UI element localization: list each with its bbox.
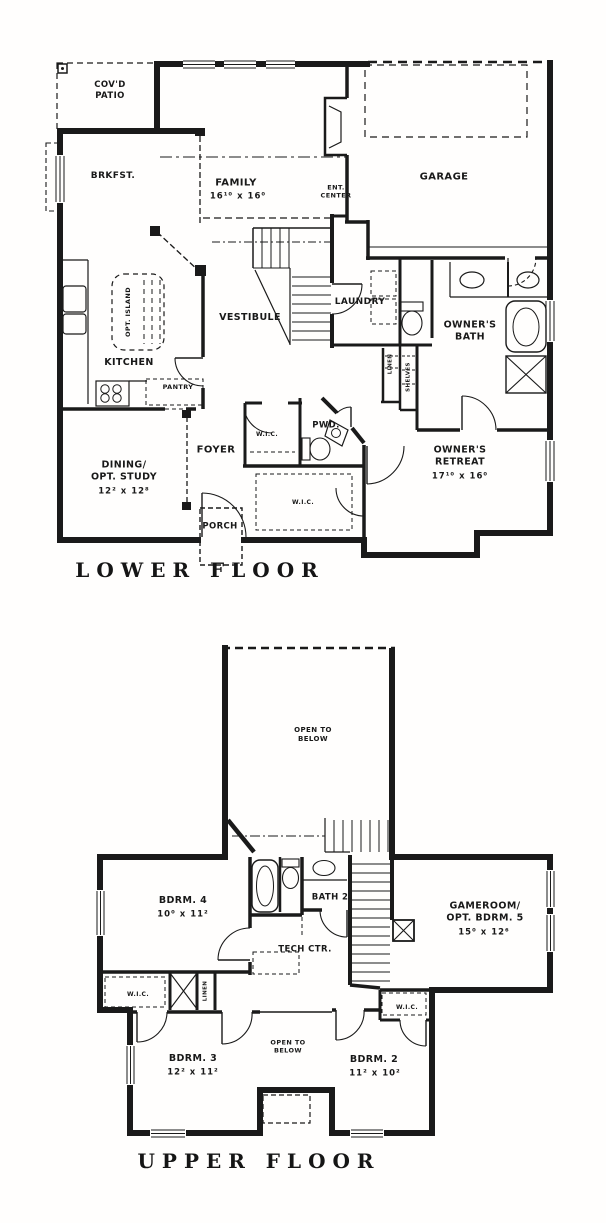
island-dashed xyxy=(112,274,164,350)
door-arc xyxy=(462,396,496,430)
sink-icon xyxy=(313,861,335,876)
room-label-gameroom: GAMEROOM/ OPT. BDRM. 5 xyxy=(446,901,523,926)
upper-exterior-walls xyxy=(97,645,553,1136)
door-arc xyxy=(400,1020,426,1046)
room-label-laundry: LAUNDRY xyxy=(335,297,386,309)
room-label-shelves: SHELVES xyxy=(405,362,412,392)
window xyxy=(183,57,215,71)
window xyxy=(544,870,556,908)
toilet-icon xyxy=(282,859,299,889)
windows-lower xyxy=(53,57,557,482)
room-label-brkfst: BRKFST. xyxy=(91,171,135,183)
window xyxy=(224,57,256,71)
porch-outline xyxy=(200,508,242,565)
room-label-garage: GARAGE xyxy=(420,171,469,184)
window xyxy=(94,890,106,936)
room-label-owners-bath: OWNER'S BATH xyxy=(444,320,497,345)
room-label-pantry: PANTRY xyxy=(163,383,194,391)
room-label-tech-ctr: TECH CTR. xyxy=(278,944,331,955)
room-label-porch: PORCH xyxy=(202,521,237,532)
room-dims-owners-retreat: 17¹⁰ x 16⁰ xyxy=(432,471,488,482)
garage-storage-dashed xyxy=(365,65,527,137)
room-label-owners-retreat: OWNER'S RETREAT xyxy=(434,445,487,470)
bath2-fixtures xyxy=(252,859,347,912)
room-label-opt-island: OPT. ISLAND xyxy=(124,287,132,337)
newel-post xyxy=(393,920,414,941)
window xyxy=(350,1127,384,1139)
stairs-lower xyxy=(253,228,332,345)
room-label-family: FAMILY xyxy=(215,177,257,190)
doors-upper xyxy=(137,910,426,1046)
room-dims-bdrm3: 12² x 11² xyxy=(167,1067,219,1078)
room-label-foyer: FOYER xyxy=(197,444,236,457)
floor-plan-page: COV'D PATIO BRKFST. FAMILY 16¹⁰ x 16⁰ EN… xyxy=(0,0,606,1223)
room-label-bath2: BATH 2 xyxy=(312,892,349,903)
vanity-sink xyxy=(302,861,347,881)
porch-roof-dashed xyxy=(263,1095,310,1123)
sink-icon xyxy=(517,272,539,288)
x-closet xyxy=(170,973,197,1009)
room-dims-bdrm2: 11² x 10² xyxy=(349,1068,401,1079)
room-label-vestibule: VESTIBULE xyxy=(219,312,281,324)
door-arc xyxy=(222,1012,252,1044)
room-label-wic-upper-right: W.I.C. xyxy=(396,1004,418,1012)
room-label-pwd: PWD. xyxy=(312,420,340,431)
room-label-ent-center: ENT. CENTER xyxy=(321,184,352,201)
bathtub-icon xyxy=(506,301,546,352)
door-arc xyxy=(218,928,250,960)
room-dims-bdrm4: 10⁰ x 11² xyxy=(157,909,209,920)
window xyxy=(150,1127,186,1139)
garage-details xyxy=(365,65,547,247)
window xyxy=(266,57,295,71)
sink-icon xyxy=(460,272,484,288)
room-label-dining: DINING/ OPT. STUDY xyxy=(91,460,157,485)
room-label-kitchen: KITCHEN xyxy=(104,357,154,369)
room-dims-gameroom: 15⁰ x 12⁶ xyxy=(458,927,510,938)
room-label-bdrm2: BDRM. 2 xyxy=(350,1054,398,1066)
room-label-wic-hall: W.I.C. xyxy=(256,431,278,439)
window xyxy=(543,440,557,482)
bathtub-icon xyxy=(252,860,278,912)
kitchen-sink-icon xyxy=(63,286,86,334)
range-icon xyxy=(96,381,129,406)
room-label-bdrm4: BDRM. 4 xyxy=(159,895,207,907)
room-dims-family: 16¹⁰ x 16⁰ xyxy=(210,191,266,202)
room-label-linen-lower: LINEN xyxy=(387,354,394,375)
toilet-icon xyxy=(302,438,330,460)
lower-floor-title: LOWER FLOOR xyxy=(75,558,325,582)
door-arc xyxy=(336,1010,364,1040)
door-arc xyxy=(244,405,272,433)
door-arc xyxy=(508,258,536,286)
room-label-open-to-below-small: OPEN TO BELOW xyxy=(270,1039,305,1056)
room-label-bdrm3: BDRM. 3 xyxy=(169,1053,217,1065)
room-label-wic-upper-left: W.I.C. xyxy=(127,991,149,999)
room-label-linen-upper: LINEN xyxy=(202,981,209,1002)
upper-floor-title: UPPER FLOOR xyxy=(137,1149,380,1173)
room-label-covd-patio: COV'D PATIO xyxy=(94,80,125,102)
window xyxy=(124,1045,136,1085)
window xyxy=(544,914,556,952)
door-arc xyxy=(336,488,364,516)
toilet-icon xyxy=(401,302,423,335)
shower-icon xyxy=(506,356,546,393)
window xyxy=(53,155,67,203)
fireplace-niche xyxy=(325,98,347,155)
room-dims-dining: 12² x 12⁸ xyxy=(98,486,150,497)
door-arc xyxy=(137,1012,167,1042)
door-arc xyxy=(367,446,404,484)
vanity-sinks xyxy=(450,262,550,297)
room-label-open-to-below: OPEN TO BELOW xyxy=(294,726,332,744)
room-label-wic-owner: W.I.C. xyxy=(292,499,314,507)
door-arc xyxy=(320,910,347,937)
